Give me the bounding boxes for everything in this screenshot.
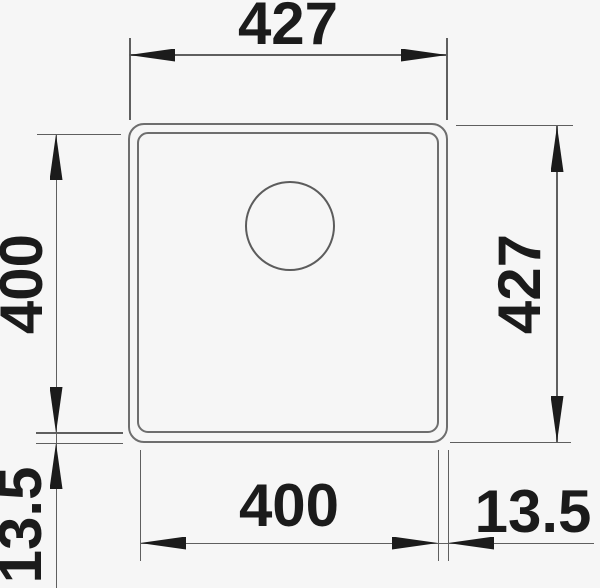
drain-hole-circle xyxy=(245,181,335,271)
arrowhead-right xyxy=(401,49,447,62)
dimension-line-right xyxy=(556,126,558,442)
sink-inner-outline xyxy=(137,132,439,433)
extension-line-left-inner-bottom xyxy=(36,432,123,434)
arrowhead-up xyxy=(50,134,63,180)
dimension-line-left xyxy=(56,134,58,588)
dimension-label-top-width: 427 xyxy=(208,0,368,54)
dimension-label-bottom-left-offset: 13.5 xyxy=(0,445,51,588)
extension-line-top-left xyxy=(129,38,131,120)
dimension-label-bottom-right-offset: 13.5 xyxy=(453,482,600,542)
extension-line-top-right xyxy=(446,38,448,120)
extension-line-right-bottom xyxy=(450,442,571,444)
arrowhead-up xyxy=(551,126,564,172)
arrowhead-left xyxy=(129,49,175,62)
arrowhead-down xyxy=(551,396,564,442)
extension-line-bottom-outer-right xyxy=(448,450,450,561)
extension-line-left-outer-bottom xyxy=(36,443,123,445)
arrowhead-left xyxy=(140,537,186,550)
dimension-label-right-height: 427 xyxy=(490,204,550,364)
dimension-label-left-height: 400 xyxy=(0,204,52,364)
arrowhead-down xyxy=(50,387,63,433)
extension-line-bottom-inner-right xyxy=(438,450,440,561)
extension-line-bottom-left xyxy=(140,450,142,561)
technical-drawing: 427 400 13.5 427 400 13.5 xyxy=(0,0,600,588)
extension-line-left-top xyxy=(37,134,121,136)
arrowhead-right xyxy=(392,537,438,550)
dimension-label-bottom-width: 400 xyxy=(209,476,369,536)
